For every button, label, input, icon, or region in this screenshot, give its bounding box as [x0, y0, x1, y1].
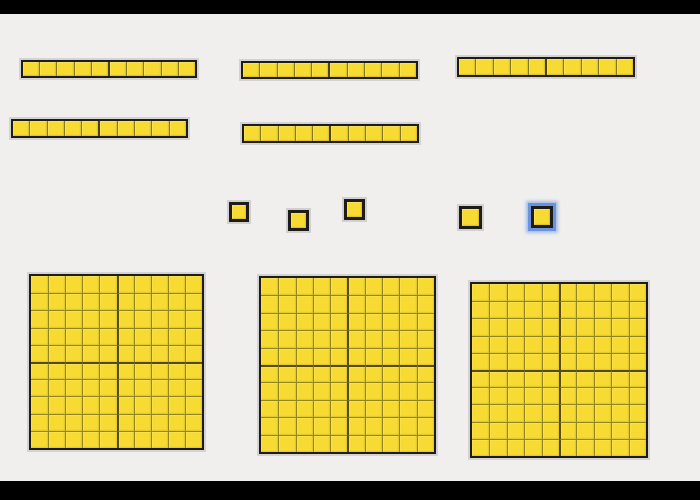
flat-cell: [347, 382, 364, 399]
flat-cell: [65, 414, 82, 431]
flat-cell: [31, 431, 48, 448]
flat-cell: [99, 379, 116, 396]
flat-cell: [417, 400, 434, 417]
rod-cell: [399, 63, 416, 77]
flat-cell: [261, 400, 278, 417]
flat-cell: [382, 382, 399, 399]
flat-cell: [168, 276, 185, 293]
flat-cell: [278, 417, 295, 434]
rod-cell: [134, 121, 151, 136]
flat-cell: [611, 284, 628, 301]
ones-unit[interactable]: [344, 199, 365, 220]
rod-cell: [64, 121, 81, 136]
flat-cell: [611, 439, 628, 456]
flat-cell: [489, 370, 506, 387]
flat-cell: [117, 431, 134, 448]
flat-cell: [629, 301, 646, 318]
flat-cell: [576, 404, 593, 421]
flat-cell: [399, 330, 416, 347]
flat-cell: [330, 435, 347, 452]
flat-cell: [117, 379, 134, 396]
flat-cell: [31, 328, 48, 345]
flat-cell: [559, 404, 576, 421]
flat-cell: [417, 330, 434, 347]
flat-cell: [48, 431, 65, 448]
flat-cell: [629, 404, 646, 421]
flat-cell: [365, 365, 382, 382]
unit-face: [347, 202, 362, 217]
flat-cell: [417, 348, 434, 365]
flat-cell: [542, 284, 559, 301]
rod-cell: [39, 62, 56, 76]
flat-cell: [611, 318, 628, 335]
flat-cell: [594, 301, 611, 318]
rod-cell: [47, 121, 64, 136]
rod-cell: [56, 62, 73, 76]
flat-cell: [382, 330, 399, 347]
rod-cell: [161, 62, 178, 76]
flat-cell: [261, 382, 278, 399]
flat-cell: [507, 353, 524, 370]
flat-cell: [330, 295, 347, 312]
flat-cell: [82, 276, 99, 293]
rod-cell: [364, 63, 381, 77]
flat-cell: [472, 370, 489, 387]
flat-cell: [82, 414, 99, 431]
flat-cell: [576, 284, 593, 301]
flat-cell: [399, 435, 416, 452]
flat-cell: [65, 431, 82, 448]
flat-cell: [417, 313, 434, 330]
rod-cell: [244, 126, 260, 141]
flat-cell: [185, 414, 202, 431]
flat-cell: [347, 278, 364, 295]
flat-cell: [365, 313, 382, 330]
flat-cell: [330, 417, 347, 434]
flat-cell: [151, 345, 168, 362]
flat-cell: [168, 293, 185, 310]
flat-cell: [542, 404, 559, 421]
flat-cell: [261, 295, 278, 312]
flat-cell: [151, 396, 168, 413]
flat-cell: [559, 387, 576, 404]
flat-cell: [31, 310, 48, 327]
flat-cell: [399, 295, 416, 312]
flat-cell: [31, 293, 48, 310]
rod-cell: [259, 63, 276, 77]
flat-cell: [365, 435, 382, 452]
hundreds-flat[interactable]: [29, 274, 204, 450]
flat-cell: [365, 417, 382, 434]
flat-cell: [399, 348, 416, 365]
flat-cell: [347, 417, 364, 434]
flat-cell: [151, 276, 168, 293]
ones-unit[interactable]: [229, 202, 249, 222]
ones-unit[interactable]: [288, 210, 309, 231]
flat-cell: [611, 353, 628, 370]
flat-cell: [185, 345, 202, 362]
flat-cell: [261, 348, 278, 365]
flat-cell: [48, 362, 65, 379]
flat-cell: [347, 313, 364, 330]
blocks-board[interactable]: [0, 0, 700, 500]
flat-cell: [296, 417, 313, 434]
flat-cell: [185, 362, 202, 379]
flat-cell: [330, 382, 347, 399]
tens-rod[interactable]: [242, 124, 419, 143]
flat-cell: [99, 414, 116, 431]
flat-cell: [576, 336, 593, 353]
rod-cell: [23, 62, 39, 76]
flat-cell: [399, 382, 416, 399]
flat-cell: [382, 278, 399, 295]
flat-cell: [559, 318, 576, 335]
flat-cell: [417, 295, 434, 312]
flat-cell: [542, 439, 559, 456]
flat-cell: [365, 295, 382, 312]
flat-cell: [48, 328, 65, 345]
flat-cell: [507, 422, 524, 439]
flat-cell: [99, 310, 116, 327]
flat-cell: [382, 295, 399, 312]
flat-cell: [168, 396, 185, 413]
flat-cell: [507, 404, 524, 421]
flat-cell: [382, 348, 399, 365]
flat-cell: [611, 301, 628, 318]
flat-cell: [261, 313, 278, 330]
flat-cell: [472, 284, 489, 301]
hundreds-flat[interactable]: [259, 276, 436, 454]
flat-cell: [168, 345, 185, 362]
flat-cell: [82, 379, 99, 396]
flat-cell: [489, 318, 506, 335]
flat-cell: [168, 379, 185, 396]
flat-cell: [524, 336, 541, 353]
rod-cell: [348, 126, 365, 141]
rod-cell: [13, 121, 29, 136]
flat-cell: [65, 293, 82, 310]
rod-cell: [117, 121, 134, 136]
flat-cell: [594, 404, 611, 421]
flat-cell: [542, 353, 559, 370]
flat-cell: [134, 345, 151, 362]
flat-cell: [99, 396, 116, 413]
flat-cell: [31, 396, 48, 413]
flat-cell: [489, 387, 506, 404]
flat-cell: [65, 396, 82, 413]
flat-cell: [594, 284, 611, 301]
flat-cell: [559, 370, 576, 387]
flat-cell: [611, 422, 628, 439]
flat-cell: [382, 365, 399, 382]
flat-cell: [507, 284, 524, 301]
flat-cell: [134, 431, 151, 448]
flat-cell: [594, 439, 611, 456]
flat-cell: [82, 328, 99, 345]
flat-cell: [576, 353, 593, 370]
flat-cell: [559, 439, 576, 456]
flat-cell: [542, 370, 559, 387]
flat-cell: [507, 318, 524, 335]
flat-cell: [296, 365, 313, 382]
rod-cell: [81, 121, 98, 136]
flat-cell: [48, 345, 65, 362]
flat-cell: [382, 435, 399, 452]
flat-cell: [151, 379, 168, 396]
flat-cell: [261, 435, 278, 452]
flat-cell: [472, 353, 489, 370]
flat-cell: [330, 313, 347, 330]
rod-cell: [126, 62, 143, 76]
flat-cell: [99, 431, 116, 448]
rod-cell: [581, 59, 598, 75]
flat-cell: [151, 414, 168, 431]
flat-cell: [629, 422, 646, 439]
flat-cell: [313, 417, 330, 434]
rod-cell: [329, 126, 347, 141]
rod-cell: [278, 126, 295, 141]
flat-cell: [629, 284, 646, 301]
rod-cell: [108, 62, 126, 76]
rod-cell: [295, 126, 312, 141]
flat-cell: [261, 278, 278, 295]
flat-cell: [399, 313, 416, 330]
flat-cell: [472, 318, 489, 335]
flat-cell: [313, 382, 330, 399]
flat-cell: [82, 310, 99, 327]
flat-cell: [261, 365, 278, 382]
flat-cell: [472, 439, 489, 456]
flat-cell: [134, 362, 151, 379]
flat-cell: [629, 387, 646, 404]
rod-cell: [178, 62, 195, 76]
flat-cell: [48, 293, 65, 310]
flat-cell: [489, 439, 506, 456]
ones-unit[interactable]: [459, 206, 482, 229]
rod-cell: [459, 59, 475, 75]
flat-cell: [99, 293, 116, 310]
flat-cell: [365, 330, 382, 347]
flat-cell: [489, 284, 506, 301]
flat-cell: [542, 336, 559, 353]
unit-face: [291, 213, 306, 228]
flat-cell: [168, 328, 185, 345]
flat-cell: [313, 348, 330, 365]
flat-cell: [261, 417, 278, 434]
flat-cell: [365, 348, 382, 365]
flat-cell: [313, 435, 330, 452]
flat-cell: [65, 328, 82, 345]
flat-cell: [313, 330, 330, 347]
flat-cell: [313, 365, 330, 382]
flat-cell: [594, 336, 611, 353]
flat-cell: [594, 318, 611, 335]
flat-cell: [31, 362, 48, 379]
rod-cell: [382, 126, 399, 141]
flat-cell: [296, 348, 313, 365]
rod-cell: [510, 59, 527, 75]
rod-cell: [243, 63, 259, 77]
flat-cell: [472, 387, 489, 404]
flat-cell: [611, 387, 628, 404]
flat-cell: [382, 417, 399, 434]
flat-cell: [524, 301, 541, 318]
rod-cell: [365, 126, 382, 141]
rod-cell: [151, 121, 168, 136]
flat-cell: [347, 330, 364, 347]
unit-face: [462, 209, 479, 226]
flat-cell: [117, 396, 134, 413]
flat-cell: [99, 276, 116, 293]
hundreds-flat[interactable]: [470, 282, 648, 458]
flat-cell: [576, 439, 593, 456]
flat-cell: [542, 301, 559, 318]
flat-cell: [278, 365, 295, 382]
flat-cell: [559, 422, 576, 439]
flat-cell: [576, 301, 593, 318]
flat-cell: [417, 435, 434, 452]
flat-cell: [48, 414, 65, 431]
flat-cell: [99, 328, 116, 345]
flat-cell: [185, 431, 202, 448]
rod-cell: [312, 126, 329, 141]
flat-cell: [382, 313, 399, 330]
flat-cell: [524, 370, 541, 387]
flat-cell: [151, 293, 168, 310]
flat-cell: [296, 278, 313, 295]
ones-unit-selected[interactable]: [531, 206, 553, 228]
top-letterbox-bar: [0, 0, 700, 14]
flat-cell: [31, 379, 48, 396]
flat-cell: [524, 353, 541, 370]
flat-cell: [524, 387, 541, 404]
flat-cell: [151, 310, 168, 327]
flat-cell: [559, 353, 576, 370]
flat-cell: [151, 328, 168, 345]
tens-rod[interactable]: [457, 57, 635, 77]
flat-cell: [82, 362, 99, 379]
flat-cell: [524, 284, 541, 301]
flat-cell: [278, 278, 295, 295]
flat-cell: [296, 313, 313, 330]
rod-cell: [563, 59, 580, 75]
flat-cell: [296, 400, 313, 417]
flat-cell: [278, 295, 295, 312]
flat-cell: [347, 365, 364, 382]
flat-cell: [168, 431, 185, 448]
flat-cell: [472, 422, 489, 439]
flat-cell: [417, 365, 434, 382]
flat-cell: [168, 310, 185, 327]
flat-cell: [48, 276, 65, 293]
flat-cell: [347, 435, 364, 452]
flat-cell: [542, 422, 559, 439]
flat-cell: [65, 310, 82, 327]
flat-cell: [611, 336, 628, 353]
flat-cell: [278, 313, 295, 330]
rod-cell: [311, 63, 328, 77]
flat-cell: [576, 370, 593, 387]
rod-cell: [400, 126, 417, 141]
flat-cell: [48, 379, 65, 396]
flat-cell: [313, 278, 330, 295]
rod-cell: [169, 121, 186, 136]
flat-cell: [629, 336, 646, 353]
flat-cell: [524, 404, 541, 421]
rod-cell: [143, 62, 160, 76]
rod-cell: [475, 59, 492, 75]
rod-cell: [294, 63, 311, 77]
flat-cell: [82, 345, 99, 362]
flat-cell: [472, 336, 489, 353]
tens-rod[interactable]: [21, 60, 197, 78]
tens-rod[interactable]: [241, 61, 418, 79]
flat-cell: [296, 382, 313, 399]
flat-cell: [296, 330, 313, 347]
rod-cell: [493, 59, 510, 75]
flat-cell: [576, 422, 593, 439]
flat-cell: [489, 404, 506, 421]
flat-cell: [117, 276, 134, 293]
bottom-letterbox-bar: [0, 481, 700, 500]
flat-cell: [611, 404, 628, 421]
flat-cell: [489, 353, 506, 370]
flat-cell: [117, 328, 134, 345]
flat-cell: [82, 396, 99, 413]
flat-cell: [559, 336, 576, 353]
unit-face: [232, 205, 246, 219]
flat-cell: [48, 310, 65, 327]
flat-cell: [629, 353, 646, 370]
flat-cell: [65, 345, 82, 362]
flat-cell: [489, 301, 506, 318]
flat-cell: [507, 439, 524, 456]
flat-cell: [347, 348, 364, 365]
flat-cell: [134, 396, 151, 413]
rod-cell: [545, 59, 563, 75]
flat-cell: [507, 336, 524, 353]
flat-cell: [134, 276, 151, 293]
flat-cell: [82, 431, 99, 448]
flat-cell: [559, 284, 576, 301]
flat-cell: [576, 387, 593, 404]
flat-cell: [594, 370, 611, 387]
flat-cell: [134, 379, 151, 396]
tens-rod[interactable]: [11, 119, 188, 138]
flat-cell: [330, 365, 347, 382]
flat-cell: [99, 345, 116, 362]
flat-cell: [296, 295, 313, 312]
flat-cell: [31, 345, 48, 362]
rod-cell: [381, 63, 398, 77]
flat-cell: [542, 387, 559, 404]
flat-cell: [629, 370, 646, 387]
flat-cell: [330, 330, 347, 347]
flat-cell: [65, 379, 82, 396]
flat-cell: [313, 295, 330, 312]
rod-cell: [347, 63, 364, 77]
flat-cell: [168, 362, 185, 379]
flat-cell: [31, 414, 48, 431]
flat-cell: [611, 370, 628, 387]
flat-cell: [185, 293, 202, 310]
flat-cell: [278, 400, 295, 417]
flat-cell: [117, 293, 134, 310]
flat-cell: [48, 396, 65, 413]
flat-cell: [330, 278, 347, 295]
flat-cell: [117, 345, 134, 362]
flat-cell: [559, 301, 576, 318]
